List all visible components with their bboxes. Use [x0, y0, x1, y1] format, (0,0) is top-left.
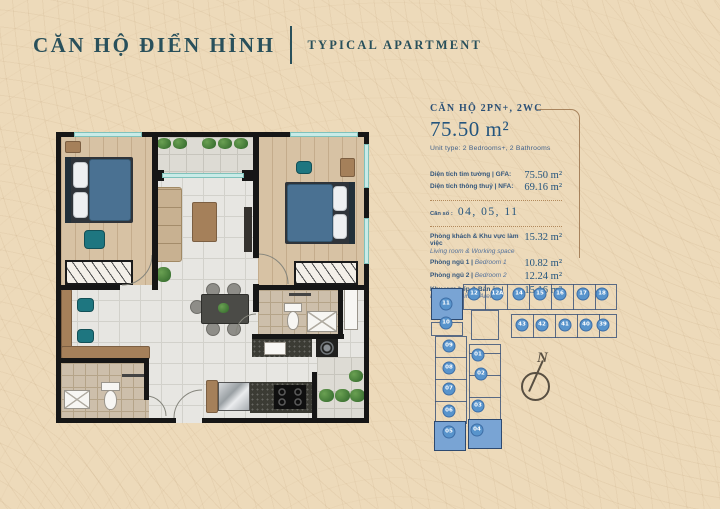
wall — [312, 372, 317, 418]
page-title-en: TYPICAL APARTMENT — [307, 38, 482, 53]
window — [364, 144, 369, 188]
keyplan-unit-badge-06: 06 — [443, 405, 456, 418]
window — [74, 132, 142, 137]
wall — [152, 132, 158, 290]
window — [364, 218, 369, 264]
keyplan-unit-badge-12A: 12A — [491, 288, 504, 301]
keyplan-unit-badge-09: 09 — [443, 340, 456, 353]
room-label: Phòng khách & Khu vực làm việcLiving roo… — [430, 233, 524, 256]
unit-number-value: 04, 05, 11 — [458, 207, 519, 217]
room-label: Phòng ngủ 1 | Bedroom 1 — [430, 259, 507, 267]
wall-column — [242, 170, 259, 181]
compass: N — [515, 350, 571, 410]
wall — [253, 285, 369, 290]
keyplan-unit-badge-16: 16 — [554, 288, 567, 301]
wall — [253, 290, 259, 312]
wall — [56, 358, 149, 363]
balcony-glass-door — [162, 173, 244, 178]
keyplan-unit-badge-12: 12 — [468, 288, 481, 301]
keyplan-unit-badge-05: 05 — [443, 426, 456, 439]
keyplan-unit-badge-40: 40 — [580, 319, 593, 332]
keyplan-unit-badge-41: 41 — [559, 319, 572, 332]
wall — [56, 132, 61, 423]
title-divider — [290, 26, 292, 64]
wall — [56, 285, 120, 290]
wall — [202, 418, 369, 423]
floor-plan — [56, 132, 369, 423]
nfa-label: Diện tích thông thuỷ | NFA: — [430, 183, 513, 191]
wall — [252, 334, 344, 339]
keyplan-unit-badge-15: 15 — [534, 288, 547, 301]
page-header: CĂN HỘ ĐIỂN HÌNH TYPICAL APARTMENT — [33, 26, 482, 64]
keyplan-unit-badge-43: 43 — [516, 319, 529, 332]
keyplan-unit-badge-18: 18 — [596, 288, 609, 301]
wall — [253, 132, 259, 258]
keyplan-unit-badge-10: 10 — [440, 317, 453, 330]
keyplan-unit-badge-04: 04 — [471, 424, 484, 437]
keyplan-unit-badge-42: 42 — [536, 319, 549, 332]
keyplan-unit-badge-02: 02 — [475, 368, 488, 381]
wall — [56, 418, 176, 423]
compass-circle — [521, 372, 550, 401]
keyplan-unit-badge-01: 01 — [472, 349, 485, 362]
page-title-vi: CĂN HỘ ĐIỂN HÌNH — [33, 33, 275, 58]
brochure-page: CĂN HỘ ĐIỂN HÌNH TYPICAL APARTMENT — [0, 0, 720, 509]
decorative-bracket-line — [537, 109, 580, 258]
unit-number-label: Căn số : — [430, 211, 453, 219]
room-area-row: Phòng ngủ 1 | Bedroom 110.82 m² — [430, 259, 562, 269]
keyplan-unit-badge-08: 08 — [443, 362, 456, 375]
wall — [144, 358, 149, 400]
gfa-label: Diện tích tim tường | GFA: — [430, 171, 511, 179]
keyplan-unit-badge-14: 14 — [513, 288, 526, 301]
keyplan-unit-badge-39: 39 — [597, 319, 610, 332]
wall — [338, 285, 343, 339]
keyplan-core — [471, 310, 499, 340]
window — [290, 132, 358, 137]
keyplan-unit-badge-11: 11 — [440, 298, 453, 311]
keyplan-unit-badge-03: 03 — [472, 400, 485, 413]
room-area-value: 10.82 m² — [524, 259, 562, 269]
keyplan-unit-badge-17: 17 — [577, 288, 590, 301]
keyplan-unit-badge-07: 07 — [443, 383, 456, 396]
